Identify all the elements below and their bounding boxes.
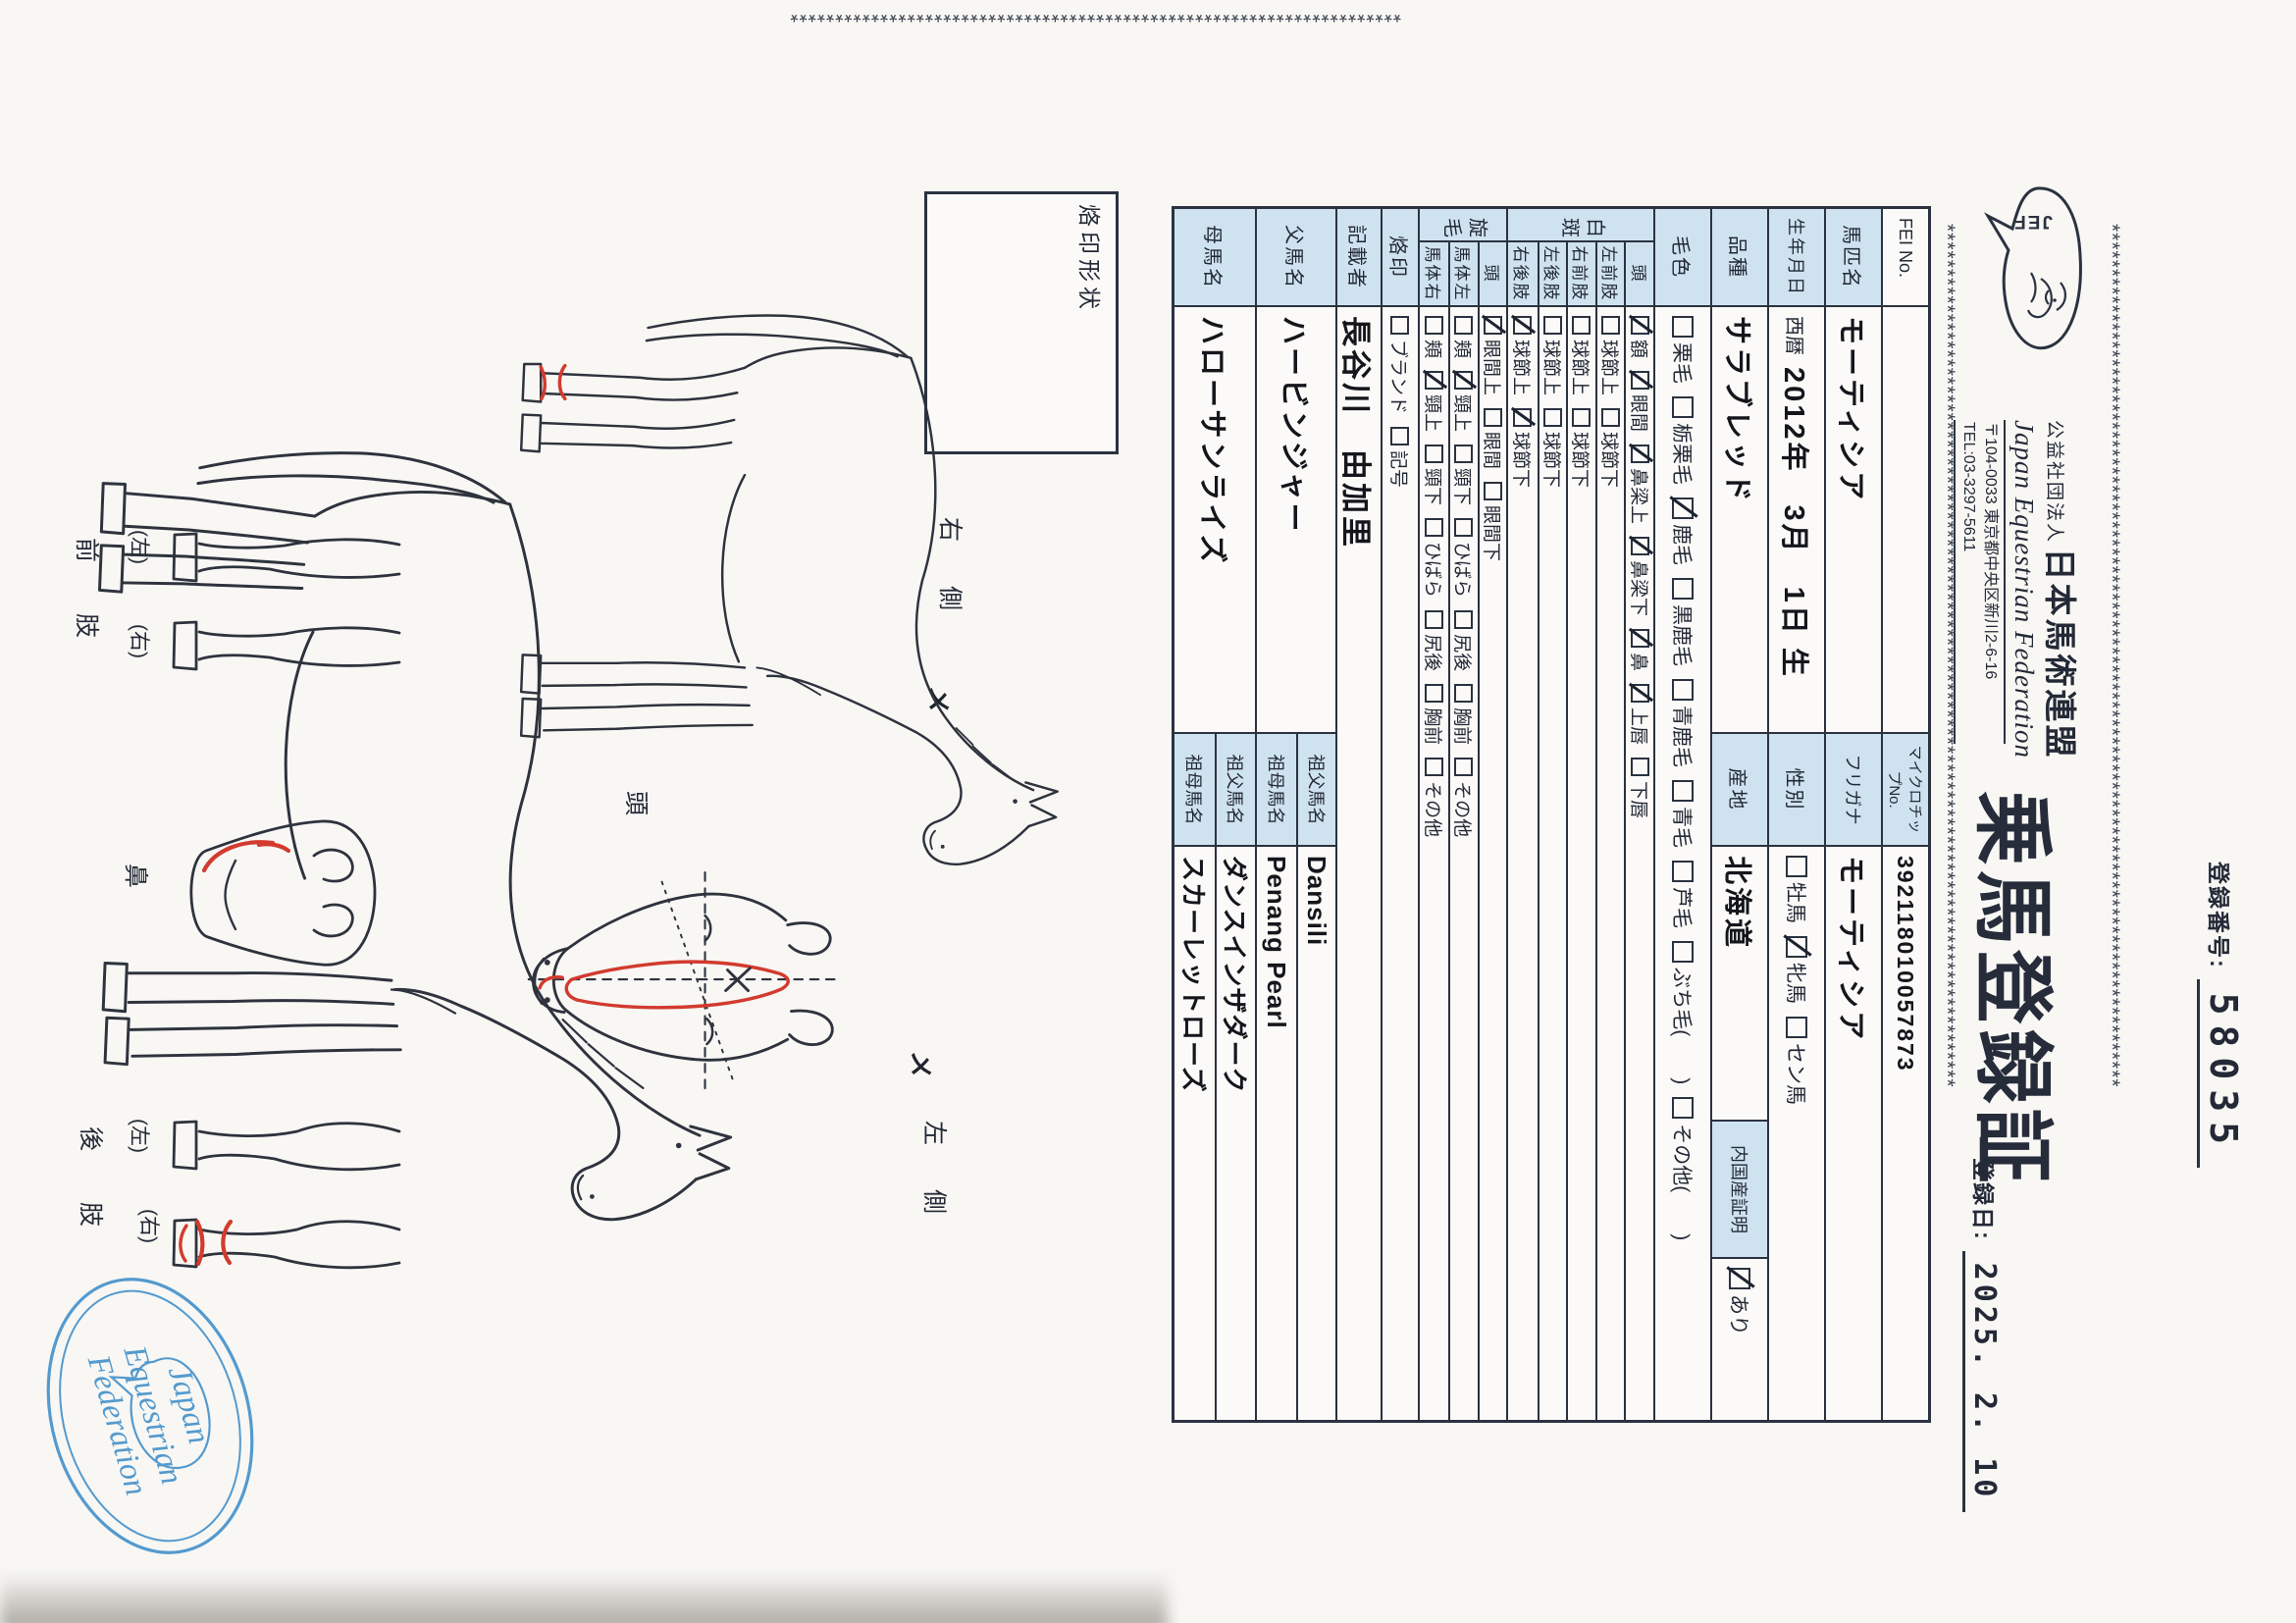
- white-marking-row: 右前肢 球節上球節下: [1566, 242, 1595, 1420]
- coat-color-option: 芦毛: [1668, 861, 1697, 928]
- coat-color-option: 青鹿毛: [1668, 679, 1697, 767]
- org-name: 日本馬術連盟: [2042, 548, 2078, 759]
- row-breed: 品種 サラブレッド 産地 北海道 内国産証明 あり: [1710, 209, 1767, 1420]
- checkbox[interactable]: [1631, 758, 1649, 776]
- checkbox-option: 尻後: [1421, 610, 1447, 671]
- sex-label: 性別: [1769, 734, 1824, 847]
- checkbox-option: ひばら: [1421, 518, 1447, 598]
- scanned-certificate-image: 登録番号: 58035 ****************************…: [0, 0, 2296, 1623]
- checkbox-option: 頸下: [1450, 445, 1477, 505]
- marking-options: 球節上球節下: [1568, 307, 1595, 1420]
- whorls-group: 旋毛 頭 眼間上眼間眼間下 馬体左 頬頸上頸下ひばら尻後胸前その他 馬体右: [1418, 209, 1506, 1420]
- checkbox[interactable]: [1484, 408, 1502, 427]
- row-fei: FEI No. マイクロチップNo. 392118010057873: [1881, 209, 1928, 1420]
- coat-color-option: 青毛: [1668, 780, 1697, 848]
- checkbox[interactable]: [1631, 316, 1649, 335]
- recorder-value: 長谷川 由加里: [1337, 307, 1381, 1420]
- scan-edge-shadow: [0, 1572, 1168, 1623]
- brand-shape-label: 烙印形状: [1074, 204, 1108, 314]
- sire-dam-value: Penang Pearl: [1257, 847, 1296, 1420]
- org-tel: TEL:03-3297-5611: [1960, 422, 1977, 551]
- checkbox[interactable]: [1513, 408, 1532, 427]
- whorl-options: 眼間上眼間眼間下: [1480, 307, 1506, 1420]
- coat-color-label: 毛色: [1655, 209, 1710, 307]
- checkbox-option: 球節下: [1509, 408, 1536, 488]
- domestic-option: あり: [1725, 1268, 1754, 1335]
- row-sire-dam: 祖母馬名 Penang Pearl: [1257, 734, 1296, 1420]
- birthdate-value: 2012年 3月 1日 生: [1776, 367, 1817, 679]
- checkbox[interactable]: [1631, 371, 1649, 390]
- checkbox[interactable]: [1425, 445, 1443, 463]
- coat-color-option: ぶち毛( ): [1668, 941, 1697, 1084]
- body-part-label: 馬体右: [1420, 242, 1448, 307]
- checkbox[interactable]: [1425, 684, 1443, 703]
- row-coat-color: 毛色 栗毛栃栗毛鹿毛黒鹿毛青鹿毛青毛芦毛ぶち毛( )その他( ): [1653, 209, 1710, 1420]
- checkbox[interactable]: [1454, 684, 1473, 703]
- row-recorder: 記載者 長谷川 由加里: [1335, 209, 1381, 1420]
- checkbox[interactable]: [1543, 316, 1562, 335]
- checkbox-option: 球節上: [1539, 316, 1566, 395]
- checkbox[interactable]: [1631, 684, 1649, 703]
- registration-number-value: 58035: [2197, 979, 2245, 1168]
- front-limb-right-label: (右): [126, 624, 155, 658]
- checkbox-option: 眼間: [1627, 371, 1653, 432]
- checkbox[interactable]: [1672, 780, 1694, 802]
- checkbox[interactable]: [1454, 758, 1473, 776]
- birthdate-label: 生年月日: [1769, 209, 1824, 307]
- checkbox-option: 球節上: [1568, 316, 1594, 395]
- body-part-label: 左後肢: [1539, 242, 1567, 307]
- body-part-label: 右前肢: [1568, 242, 1595, 307]
- brand-option: 記号: [1387, 427, 1414, 488]
- row-brand: 烙印 ブランド記号: [1381, 209, 1418, 1420]
- whorl-rows: 頭 眼間上眼間眼間下 馬体左 頬頸上頸下ひばら尻後胸前その他 馬体右 頬頸上頸下…: [1420, 242, 1506, 1420]
- checkbox[interactable]: [1786, 1017, 1807, 1038]
- brand-options: ブランド記号: [1383, 307, 1418, 1420]
- org-address: 〒104-0033 東京都中央区新川2-6-16: [1982, 422, 1999, 679]
- row-sire: 父馬名 ハービンジャー 祖父馬名 Dansili 祖母馬名 Penang Pea…: [1255, 209, 1335, 1420]
- row-dam: 母馬名 ハローサンライズ 祖父馬名 ダンスインザダーク 祖母馬名 スカーレットロ…: [1174, 209, 1255, 1420]
- body-part-label: 右後肢: [1508, 242, 1538, 307]
- horse-data-table: FEI No. マイクロチップNo. 392118010057873 馬匹名 モ…: [1172, 206, 1931, 1423]
- checkbox-option: 球節下: [1539, 408, 1566, 488]
- microchip-value: 392118010057873: [1883, 847, 1928, 1420]
- front-limbs-label: 前肢: [71, 538, 106, 689]
- checkbox[interactable]: [1425, 758, 1443, 776]
- checkbox-option: 球節下: [1597, 408, 1624, 488]
- marking-options: 球節上球節下: [1597, 307, 1625, 1420]
- sex-option: セン馬: [1782, 1017, 1811, 1105]
- checkbox-option: 眼間下: [1480, 482, 1506, 561]
- checkbox[interactable]: [1454, 371, 1473, 390]
- checkbox[interactable]: [1543, 408, 1562, 427]
- checkbox[interactable]: [1672, 497, 1694, 519]
- front-limbs-diagram: [157, 520, 407, 687]
- recorder-label: 記載者: [1337, 209, 1381, 307]
- checkbox[interactable]: [1601, 316, 1620, 335]
- sire-label: 父馬名: [1257, 209, 1335, 307]
- dam-value: ハローサンライズ: [1174, 307, 1255, 734]
- checkbox[interactable]: [1672, 1097, 1694, 1119]
- sire-sire-label: 祖父馬名: [1298, 734, 1335, 847]
- checkbox[interactable]: [1454, 518, 1473, 537]
- org-name-en: Japan Equestrian Federation: [2009, 420, 2039, 744]
- row-horse-name: 馬匹名 モーティシア フリガナ モーティシア: [1824, 209, 1881, 1420]
- checkbox[interactable]: [1786, 856, 1807, 877]
- dam-dam-value: スカーレットローズ: [1174, 847, 1215, 1420]
- hind-limb-right-label: (右): [135, 1209, 165, 1243]
- registration-date-label: 登録日:: [1968, 1158, 2002, 1241]
- domestic-options: あり: [1712, 1259, 1767, 1420]
- checkbox[interactable]: [1631, 537, 1649, 555]
- checkbox-option: 眼間: [1480, 408, 1506, 469]
- jef-logo-text: JEF: [2012, 211, 2053, 232]
- checkbox[interactable]: [1572, 408, 1591, 427]
- checkbox[interactable]: [1391, 316, 1410, 335]
- checkbox-option: 鼻梁上: [1627, 445, 1653, 524]
- birth-era: 西暦: [1783, 316, 1811, 355]
- checkbox-option: 頬: [1450, 316, 1477, 358]
- left-side-view-label: 左 側: [918, 1121, 954, 1224]
- checkbox[interactable]: [1672, 396, 1694, 418]
- checkbox[interactable]: [1672, 861, 1694, 882]
- checkbox-option: ひばら: [1450, 518, 1477, 598]
- fei-label: FEI No.: [1883, 209, 1928, 307]
- checkbox[interactable]: [1484, 482, 1502, 500]
- asterisk-border-top: ****************************************…: [2100, 224, 2123, 1609]
- checkbox-option: 球節上: [1597, 316, 1624, 395]
- marking-options: 球節上球節下: [1508, 307, 1538, 1420]
- sex-option: 牡馬: [1782, 856, 1811, 923]
- checkbox[interactable]: [1484, 316, 1502, 335]
- row-birthdate: 生年月日 西暦 2012年 3月 1日 生 性別 牡馬牝馬セン馬: [1767, 209, 1824, 1420]
- horse-name-label: 馬匹名: [1826, 209, 1881, 307]
- checkbox-option: 頸上: [1421, 371, 1447, 432]
- checkbox[interactable]: [1631, 445, 1649, 463]
- checkbox-option: 頬: [1421, 316, 1447, 358]
- registration-number-line: 登録番号: 58035: [2197, 862, 2245, 1168]
- registration-date-line: 登録日: 2025. 2. 10: [1962, 1158, 2002, 1512]
- dam-sire-value: ダンスインザダーク: [1217, 847, 1255, 1420]
- checkbox[interactable]: [1631, 629, 1649, 648]
- checkbox-option: 鼻: [1627, 629, 1653, 671]
- checkbox-option: その他: [1421, 758, 1447, 837]
- checkbox-option: 尻後: [1450, 610, 1477, 671]
- checkbox[interactable]: [1672, 941, 1694, 963]
- checkbox[interactable]: [1454, 316, 1473, 335]
- checkbox-option: 下唇: [1627, 758, 1653, 818]
- hind-limb-left-label: (左): [126, 1119, 155, 1153]
- sire-dam-label: 祖母馬名: [1257, 734, 1296, 847]
- checkbox-option: 胸前: [1450, 684, 1477, 745]
- furigana-label: フリガナ: [1826, 734, 1881, 847]
- checkbox-option: 頸下: [1421, 445, 1447, 505]
- sire-sire-value: Dansili: [1298, 847, 1335, 1420]
- marking-options: 球節上球節下: [1539, 307, 1567, 1420]
- whorl-options: 頬頸上頸下ひばら尻後胸前その他: [1450, 307, 1477, 1420]
- checkbox[interactable]: [1425, 316, 1443, 335]
- checkbox-option: 球節下: [1568, 408, 1594, 488]
- checkbox[interactable]: [1513, 316, 1532, 335]
- sex-options: 牡馬牝馬セン馬: [1769, 847, 1824, 1420]
- checkbox[interactable]: [1786, 936, 1807, 958]
- red-mark-right-hind-hoof: [181, 1226, 186, 1261]
- fei-value: [1883, 307, 1928, 734]
- organization-block: 公益社団法人 日本馬術連盟 Japan Equestrian Federatio…: [1954, 420, 2086, 744]
- breed-label: 品種: [1712, 209, 1767, 307]
- certificate-page: 登録番号: 58035 ****************************…: [0, 0, 2296, 1623]
- checkbox[interactable]: [1572, 316, 1591, 335]
- origin-value: 北海道: [1712, 847, 1767, 1122]
- org-type: 公益社団法人: [2044, 420, 2064, 544]
- jef-logo-bubble-icon: JEF: [1972, 157, 2092, 402]
- checkbox[interactable]: [1672, 316, 1694, 338]
- checkbox[interactable]: [1729, 1268, 1750, 1289]
- white-markings-group: 白斑 頭 額眼間鼻梁上鼻梁下鼻上唇下唇 左前肢 球節上球節下 右前肢: [1506, 209, 1653, 1420]
- coat-color-option: 栃栗毛: [1668, 396, 1697, 485]
- sex-option: 牝馬: [1782, 936, 1811, 1004]
- whorl-row: 馬体右 頬頸上頸下ひばら尻後胸前その他: [1420, 242, 1448, 1420]
- hind-limbs-label: 後肢: [75, 1126, 110, 1278]
- coat-color-option: その他( ): [1668, 1097, 1697, 1240]
- checkbox[interactable]: [1454, 445, 1473, 463]
- asterisk-border-left: ****************************************…: [18, 2, 1401, 26]
- horse-name-value: モーティシア: [1826, 307, 1881, 734]
- origin-label: 産地: [1712, 734, 1767, 847]
- checkbox-option: 胸前: [1421, 684, 1447, 745]
- checkbox[interactable]: [1672, 679, 1694, 701]
- checkbox-option: 上唇: [1627, 684, 1653, 745]
- dam-dam-label: 祖母馬名: [1174, 734, 1215, 847]
- checkbox[interactable]: [1425, 518, 1443, 537]
- domestic-label: 内国産証明: [1712, 1122, 1767, 1259]
- coat-color-options: 栗毛栃栗毛鹿毛黒鹿毛青鹿毛青毛芦毛ぶち毛( )その他( ): [1655, 307, 1710, 1420]
- white-marking-row: 頭 額眼間鼻梁上鼻梁下鼻上唇下唇: [1624, 242, 1653, 1420]
- dam-sire-label: 祖父馬名: [1217, 734, 1255, 847]
- dam-label: 母馬名: [1174, 209, 1255, 307]
- registration-date-value: 2025. 2. 10: [1962, 1251, 2002, 1513]
- whorl-options: 頬頸上頸下ひばら尻後胸前その他: [1420, 307, 1448, 1420]
- asterisk-border-mid: ****************************************…: [1935, 224, 1958, 1609]
- microchip-label: マイクロチップNo.: [1883, 734, 1928, 847]
- checkbox-option: 鼻梁下: [1627, 537, 1653, 616]
- checkbox-option: 額: [1627, 316, 1653, 358]
- checkbox[interactable]: [1425, 371, 1443, 390]
- row-dam-sire: 祖父馬名 ダンスインザダーク: [1215, 734, 1255, 1420]
- checkbox[interactable]: [1425, 610, 1443, 629]
- certificate-title: 乗馬登録証: [1961, 791, 2078, 1188]
- checkbox[interactable]: [1672, 578, 1694, 600]
- body-part-label: 頭: [1480, 242, 1506, 307]
- sire-value: ハービンジャー: [1257, 307, 1335, 734]
- white-marking-row: 左後肢 球節上球節下: [1538, 242, 1567, 1420]
- nose-diagram: [170, 800, 383, 986]
- furigana-value: モーティシア: [1826, 847, 1881, 1420]
- checkbox-option: 球節上: [1509, 316, 1536, 395]
- checkbox-option: その他: [1450, 758, 1477, 837]
- row-sire-sire: 祖父馬名 Dansili: [1296, 734, 1335, 1420]
- white-markings-label: 白斑: [1508, 209, 1653, 242]
- white-marking-row: 左前肢 球節上球節下: [1595, 242, 1625, 1420]
- whorl-row: 馬体左 頬頸上頸下ひばら尻後胸前その他: [1448, 242, 1477, 1420]
- brand-option: ブランド: [1387, 316, 1414, 414]
- registration-number-label: 登録番号:: [2204, 862, 2237, 969]
- checkbox-option: 眼間上: [1480, 316, 1506, 395]
- white-marking-row: 右後肢 球節上球節下: [1508, 242, 1538, 1420]
- body-part-label: 馬体左: [1450, 242, 1477, 307]
- breed-value: サラブレッド: [1712, 307, 1767, 734]
- whorls-label: 旋毛: [1420, 209, 1506, 242]
- jef-stamp: Japan Equestrian Federation: [32, 1269, 263, 1563]
- brand-label: 烙印: [1383, 209, 1418, 307]
- coat-color-option: 鹿毛: [1668, 497, 1697, 565]
- body-part-label: 頭: [1626, 242, 1653, 307]
- marking-options: 額眼間鼻梁上鼻梁下鼻上唇下唇: [1626, 307, 1653, 1420]
- whorl-row: 頭 眼間上眼間眼間下: [1478, 242, 1506, 1420]
- checkbox[interactable]: [1391, 427, 1410, 445]
- jef-logo: JEF: [1967, 157, 2092, 402]
- white-markings-rows: 頭 額眼間鼻梁上鼻梁下鼻上唇下唇 左前肢 球節上球節下 右前肢 球節上球節下: [1508, 242, 1653, 1420]
- nose-diagram-label: 鼻: [120, 864, 155, 888]
- checkbox[interactable]: [1601, 408, 1620, 427]
- front-limb-left-label: (左): [126, 530, 155, 564]
- checkbox[interactable]: [1454, 610, 1473, 629]
- body-part-label: 左前肢: [1597, 242, 1625, 307]
- coat-color-option: 栗毛: [1668, 316, 1697, 384]
- row-dam-dam: 祖母馬名 スカーレットローズ: [1174, 734, 1215, 1420]
- red-mark-right-hind-limb: [197, 1222, 231, 1264]
- coat-color-option: 黒鹿毛: [1668, 578, 1697, 666]
- checkbox-option: 頸上: [1450, 371, 1477, 432]
